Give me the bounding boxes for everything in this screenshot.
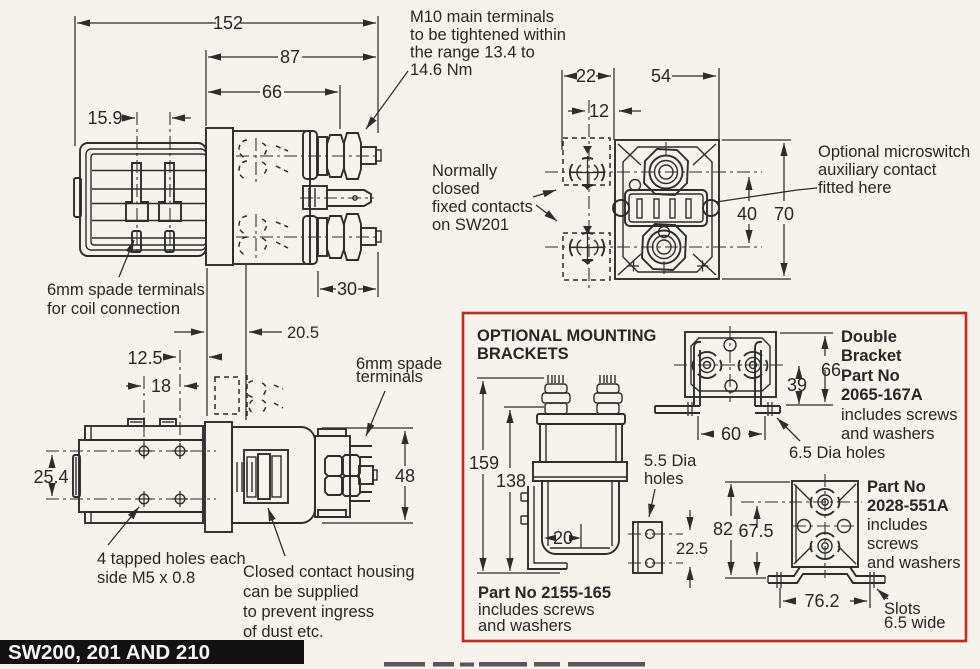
svg-text:2028-551A: 2028-551A — [867, 497, 949, 515]
svg-text:to prevent ingress: to prevent ingress — [243, 603, 374, 621]
svg-text:60: 60 — [721, 424, 741, 444]
svg-text:159: 159 — [469, 453, 499, 473]
svg-text:6.5 wide: 6.5 wide — [884, 614, 945, 632]
svg-text:66: 66 — [262, 82, 282, 102]
svg-text:70: 70 — [774, 204, 794, 224]
svg-text:and washers: and washers — [478, 617, 572, 635]
svg-text:Part No: Part No — [867, 478, 926, 496]
svg-text:22: 22 — [576, 66, 596, 86]
svg-text:the range 13.4 to: the range 13.4 to — [410, 44, 535, 62]
svg-text:18: 18 — [151, 376, 171, 396]
svg-text:30: 30 — [337, 279, 357, 299]
svg-text:Part No: Part No — [841, 367, 900, 385]
svg-text:BRACKETS: BRACKETS — [477, 345, 569, 363]
svg-text:SW200, 201 AND 210: SW200, 201 AND 210 — [8, 641, 210, 664]
svg-text:M10 main terminals: M10 main terminals — [410, 8, 554, 26]
svg-text:Part No 2155-165: Part No 2155-165 — [478, 584, 611, 602]
svg-text:25.4: 25.4 — [33, 467, 68, 487]
svg-text:Closed contact housing: Closed contact housing — [243, 563, 415, 581]
svg-text:12.5: 12.5 — [127, 348, 162, 368]
svg-text:138: 138 — [496, 471, 526, 491]
svg-text:Bracket: Bracket — [841, 347, 902, 365]
svg-text:on SW201: on SW201 — [432, 216, 509, 234]
svg-text:fixed contacts: fixed contacts — [432, 198, 533, 216]
svg-text:66: 66 — [821, 360, 841, 380]
svg-text:side M5 x 0.8: side M5 x 0.8 — [97, 569, 195, 587]
svg-text:Double: Double — [841, 328, 897, 346]
svg-text:for coil connection: for coil connection — [47, 300, 180, 318]
svg-text:39: 39 — [787, 375, 807, 395]
svg-text:Normally: Normally — [432, 162, 498, 180]
svg-text:5.5 Dia: 5.5 Dia — [644, 452, 697, 470]
svg-text:6mm spade terminals: 6mm spade terminals — [47, 281, 205, 299]
svg-text:closed: closed — [432, 180, 480, 198]
svg-text:48: 48 — [395, 466, 415, 486]
svg-text:terminals: terminals — [356, 368, 423, 386]
svg-text:20: 20 — [553, 528, 573, 548]
svg-text:OPTIONAL MOUNTING: OPTIONAL MOUNTING — [477, 327, 656, 345]
svg-text:82: 82 — [713, 519, 733, 539]
svg-text:and washers: and washers — [867, 554, 961, 572]
svg-text:2065-167A: 2065-167A — [841, 386, 923, 404]
svg-text:can be supplied: can be supplied — [243, 583, 359, 601]
svg-text:fitted here: fitted here — [818, 179, 891, 197]
svg-text:4 tapped holes each: 4 tapped holes each — [97, 550, 246, 568]
svg-text:6.5 Dia holes: 6.5 Dia holes — [789, 444, 885, 462]
svg-text:152: 152 — [213, 13, 243, 33]
svg-text:15.9: 15.9 — [87, 108, 122, 128]
svg-text:includes screws: includes screws — [841, 406, 957, 424]
svg-text:67.5: 67.5 — [738, 521, 773, 541]
svg-text:to be tightened within: to be tightened within — [410, 26, 566, 44]
svg-text:54: 54 — [651, 66, 671, 86]
svg-text:76.2: 76.2 — [804, 591, 839, 611]
svg-text:40: 40 — [737, 204, 757, 224]
svg-text:87: 87 — [280, 47, 300, 67]
svg-text:screws: screws — [867, 535, 918, 553]
svg-text:22.5: 22.5 — [676, 540, 708, 558]
svg-text:14.6 Nm: 14.6 Nm — [410, 61, 472, 79]
svg-text:holes: holes — [644, 470, 683, 488]
svg-text:auxiliary contact: auxiliary contact — [818, 161, 937, 179]
svg-text:includes: includes — [867, 516, 928, 534]
svg-text:and washers: and washers — [841, 425, 935, 443]
svg-text:Optional microswitch: Optional microswitch — [818, 143, 970, 161]
svg-text:20.5: 20.5 — [287, 324, 319, 342]
svg-text:12: 12 — [589, 101, 609, 121]
svg-text:of dust etc.: of dust etc. — [243, 623, 324, 641]
